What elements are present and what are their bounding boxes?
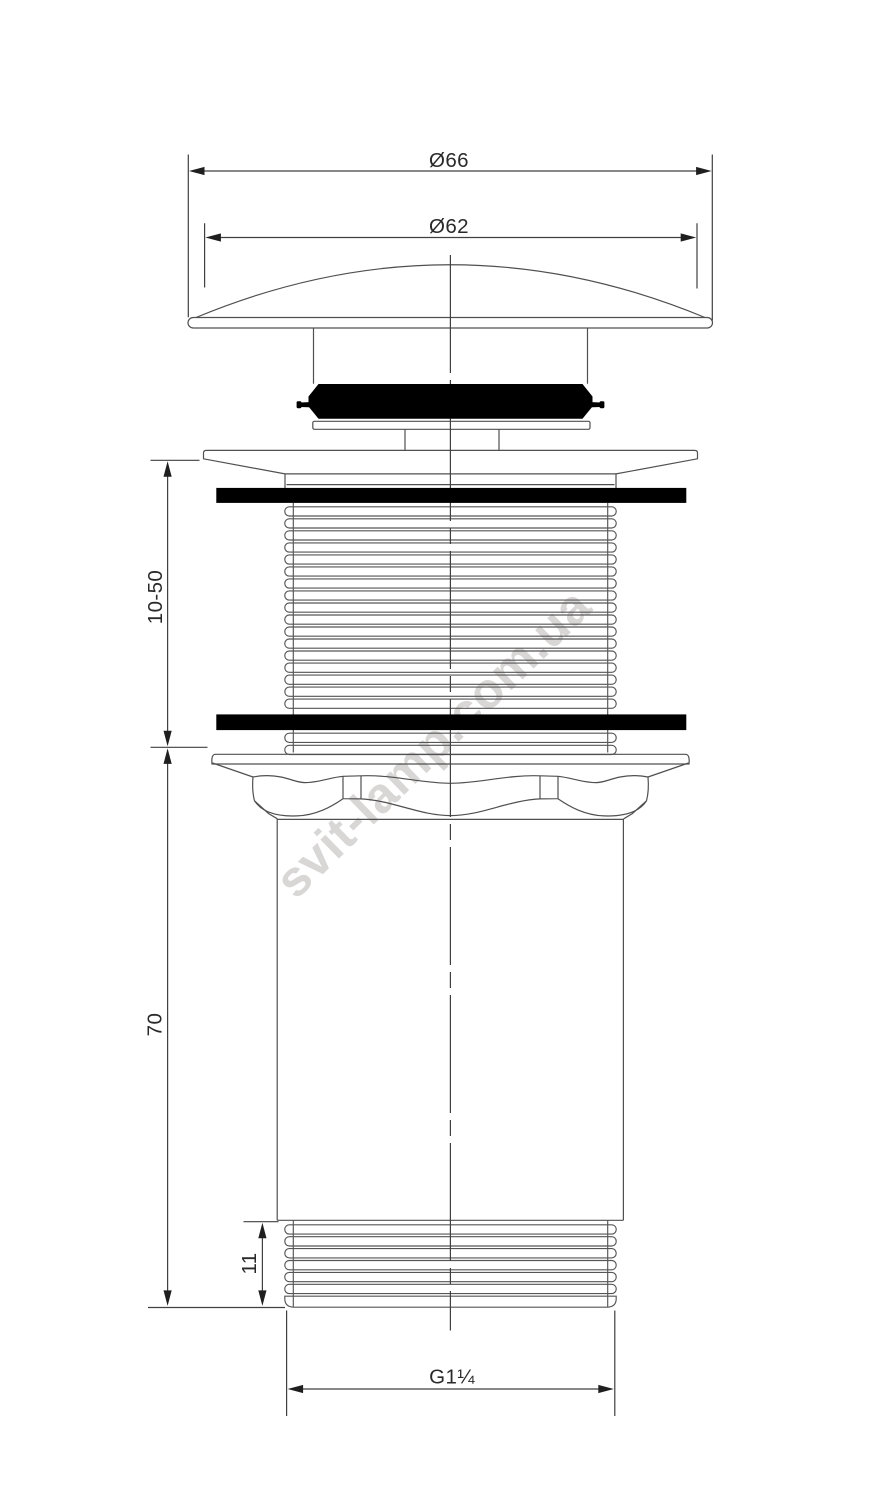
svg-text:Ø62: Ø62 xyxy=(429,215,469,238)
svg-text:Ø66: Ø66 xyxy=(429,149,469,172)
svg-text:10-50: 10-50 xyxy=(144,570,167,624)
svg-text:70: 70 xyxy=(144,1013,167,1037)
svg-text:11: 11 xyxy=(238,1252,261,1274)
svg-text:G1¼: G1¼ xyxy=(429,1366,475,1389)
